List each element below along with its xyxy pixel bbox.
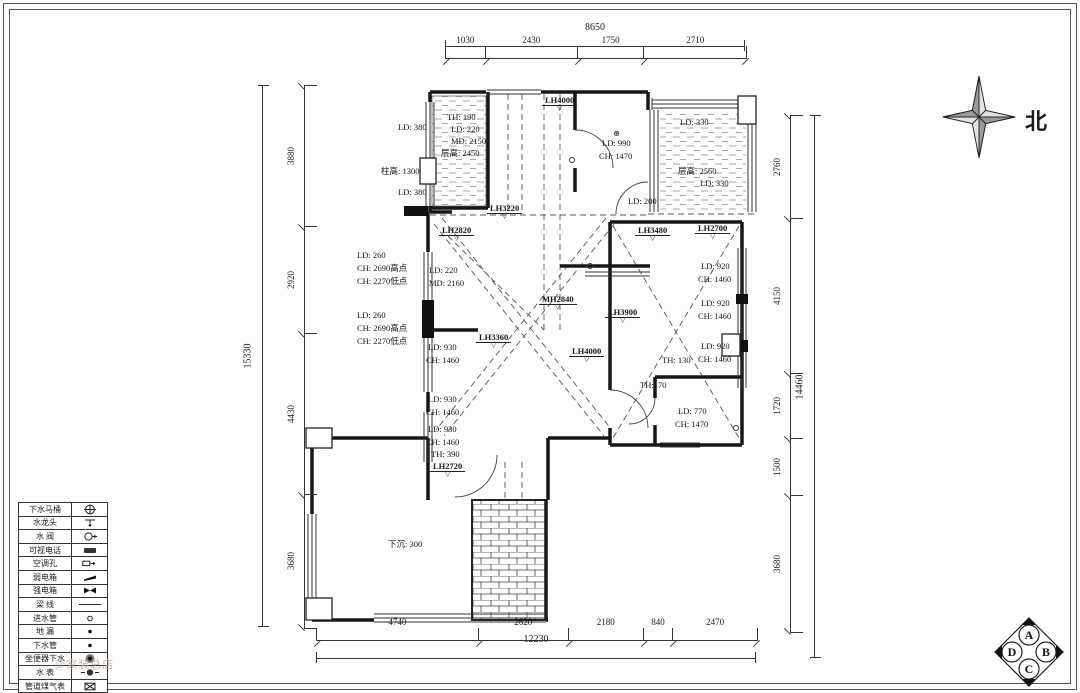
floorplan-canvas: 8650 1030243017502710 474026202180840247… <box>0 0 1080 693</box>
dim-top-segments: 1030243017502710 <box>445 46 747 59</box>
dim-segment: 4430 <box>305 333 317 494</box>
dim-left-segments: 3880292044303680 <box>304 85 317 629</box>
section-letter-top: A <box>1025 628 1034 642</box>
weak-box-icon <box>72 571 107 584</box>
legend-label: 水龙头 <box>19 517 72 530</box>
north-label: 北 <box>1025 104 1047 136</box>
gas-meter-icon <box>72 680 107 693</box>
legend-row: 强电箱 <box>19 585 107 599</box>
legend-label: 地 漏 <box>19 625 72 638</box>
faucet-icon <box>72 517 107 530</box>
legend-label: 空调孔 <box>19 557 72 570</box>
strong-box-icon <box>72 585 107 598</box>
videophone-icon <box>72 544 107 557</box>
valve-icon <box>72 530 107 543</box>
dim-segment: 3680 <box>305 494 317 628</box>
dim-segment: 3680 <box>791 495 803 632</box>
section-letter-left: D <box>1008 645 1017 659</box>
legend-row: 梁 线 <box>19 598 107 612</box>
legend-row: 地 漏 <box>19 625 107 639</box>
north-arrow-icon <box>941 74 1017 160</box>
legend-row: 水 阀 <box>19 530 107 544</box>
closet-hatch <box>432 96 486 206</box>
legend-label: 下水马桶 <box>19 503 72 516</box>
north-compass: 北 <box>941 74 1061 164</box>
dim-left-total: 15330 <box>262 85 275 627</box>
dim-segment: 2920 <box>305 226 317 333</box>
dim-segment: 1500 <box>791 438 803 495</box>
legend-label: 进水管 <box>19 612 72 625</box>
legend-label: 可视电话 <box>19 544 72 557</box>
beam-line-icon <box>72 598 107 611</box>
legend-label: 水 阀 <box>19 530 72 543</box>
legend-row: 进水管 <box>19 612 107 626</box>
legend-label: 弱电箱 <box>19 571 72 584</box>
legend-row: 管道煤气表 <box>19 680 107 693</box>
section-letter-bottom: C <box>1025 662 1034 676</box>
dim-right-total: 14460 <box>814 115 827 658</box>
brick-area <box>472 500 546 620</box>
floor-drain-icon <box>72 625 107 638</box>
legend-row: 下水马桶 <box>19 503 107 517</box>
section-letter-right: B <box>1042 645 1050 659</box>
drain-pipe-icon <box>72 639 107 652</box>
watermark-text: @家装总店 <box>55 656 114 672</box>
legend-label: 管道煤气表 <box>19 680 72 693</box>
dim-segment: 3880 <box>305 86 317 226</box>
legend-row: 下水管 <box>19 639 107 653</box>
dim-segment: 1750 <box>577 46 644 58</box>
toilet-drain-icon <box>72 503 107 516</box>
legend-label: 强电箱 <box>19 585 72 598</box>
floorplan-drawing <box>0 0 1080 693</box>
dim-segment: 2710 <box>643 46 746 58</box>
section-marker-icon: A B C D <box>993 616 1065 688</box>
dim-segment: 4150 <box>791 218 803 373</box>
ac-hole-icon <box>72 557 107 570</box>
legend-row: 空调孔 <box>19 557 107 571</box>
legend-row: 水龙头 <box>19 517 107 531</box>
legend-row: 可视电话 <box>19 544 107 558</box>
balcony-hatch <box>660 112 746 210</box>
dim-segment: 2760 <box>791 116 803 218</box>
inlet-pipe-icon <box>72 612 107 625</box>
legend-label: 梁 线 <box>19 598 72 611</box>
dim-segment: 2430 <box>485 46 577 58</box>
dim-segment: 1030 <box>446 46 485 58</box>
dim-bottom-total: 12230 <box>316 646 756 659</box>
legend-row: 弱电箱 <box>19 571 107 585</box>
legend-label: 下水管 <box>19 639 72 652</box>
